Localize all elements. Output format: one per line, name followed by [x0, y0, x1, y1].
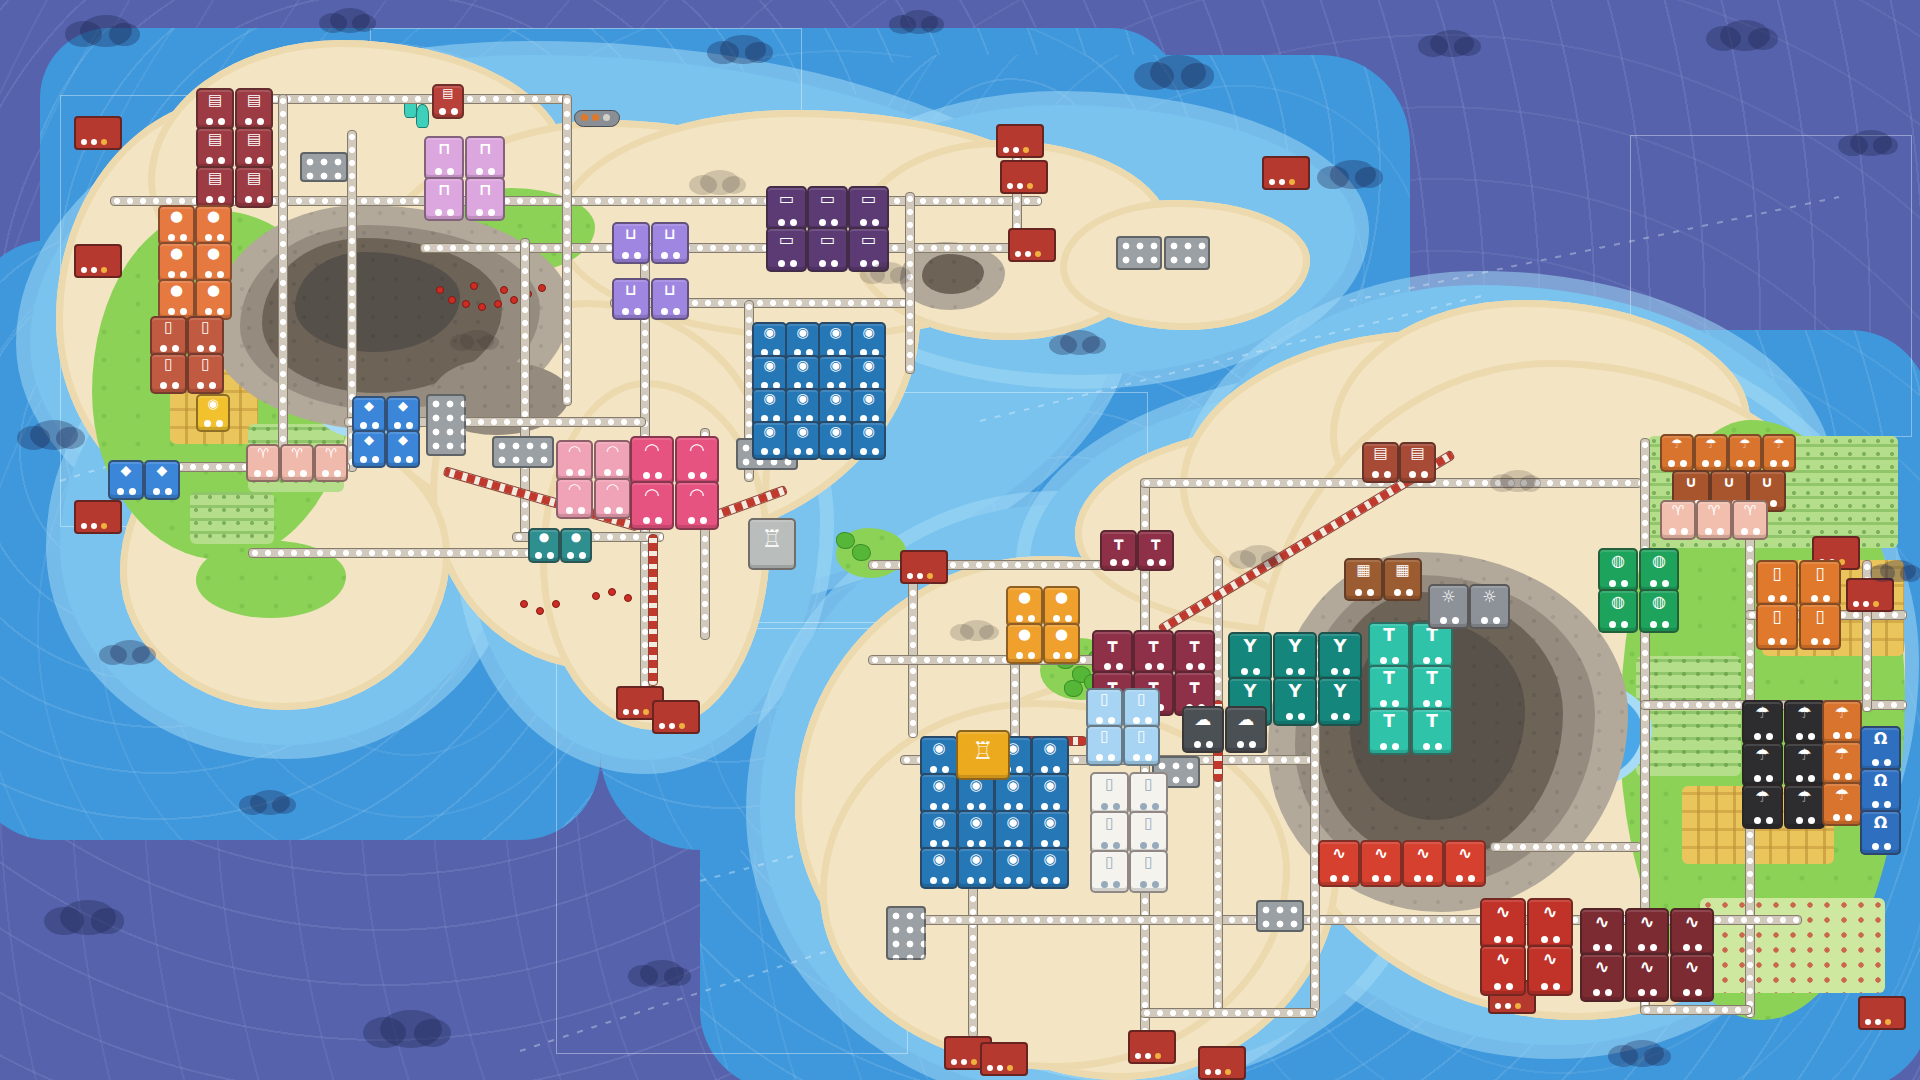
berry-bush[interactable]: [494, 300, 502, 308]
cargo-dock[interactable]: [1858, 996, 1906, 1030]
animal-pen-icon: ♈: [248, 447, 278, 461]
feather-factory-building[interactable]: ∿: [1527, 898, 1573, 949]
machine-factory-building[interactable]: ◉: [1031, 847, 1069, 889]
bottle-factory-icon: ▯: [1092, 854, 1127, 871]
bottle-factory-building[interactable]: ▯: [187, 353, 224, 394]
bed-factory-building[interactable]: ▭: [848, 186, 889, 231]
splitter-depot[interactable]: [1116, 236, 1162, 270]
machine-factory-building[interactable]: ◉: [752, 421, 787, 460]
conveyor-belt-segment[interactable]: [1490, 842, 1642, 852]
feather-factory-building[interactable]: ∿: [1480, 945, 1526, 996]
bed-factory-building[interactable]: ▭: [766, 186, 807, 231]
water-pump-building[interactable]: ◆: [108, 460, 144, 500]
mushroom-farm-building[interactable]: ☂: [1742, 742, 1783, 787]
bird-factory-building[interactable]: ∿: [1625, 953, 1669, 1002]
water-pump-building[interactable]: ◆: [352, 430, 386, 468]
machine-factory-building[interactable]: ◉: [818, 421, 853, 460]
crop-field: [1636, 656, 1741, 776]
boat-cargo: [581, 114, 588, 121]
mushroom-farm-building[interactable]: ☂: [1822, 700, 1862, 744]
hammer-factory-building[interactable]: T: [1411, 708, 1453, 755]
tool-factory-building[interactable]: Y: [1273, 632, 1317, 681]
tree: [852, 544, 871, 561]
io-slots: [206, 196, 213, 203]
splitter-depot[interactable]: [492, 436, 554, 468]
io-slots: [1796, 733, 1803, 740]
cloud-shadow: [700, 170, 740, 195]
cargo-boat[interactable]: [574, 110, 620, 127]
bottle-factory-building[interactable]: ▯: [1799, 560, 1841, 607]
machine-factory-building[interactable]: ◉: [920, 736, 958, 778]
mushroom-farm-building[interactable]: ☂: [1784, 700, 1825, 745]
bottle-factory-building[interactable]: ▯: [1756, 603, 1798, 650]
gear-factory-building[interactable]: ☼: [1428, 584, 1469, 629]
cloud-shadow-lobe: [56, 427, 85, 449]
chair-factory-building[interactable]: ⊓: [465, 136, 505, 180]
plate-factory-icon: ●: [160, 208, 193, 225]
water-pump-building[interactable]: ◆: [352, 396, 386, 434]
water-pump-icon: ◆: [388, 399, 418, 413]
berry-bush[interactable]: [624, 594, 632, 602]
boiler-building[interactable]: ☁: [1182, 706, 1224, 753]
mushroom-farm-building[interactable]: ☂: [1728, 434, 1762, 472]
mushroom-farm-building[interactable]: ☂: [1742, 700, 1783, 745]
hut-building[interactable]: ▤: [1362, 442, 1399, 483]
bottle-factory-building[interactable]: ▯: [1799, 603, 1841, 650]
couch-factory-building[interactable]: ⊔: [612, 278, 650, 320]
book-factory-icon: ▤: [237, 92, 271, 109]
io-slots: [1609, 621, 1616, 628]
pylon-factory-building[interactable]: ┳: [1092, 630, 1133, 675]
berry-bush[interactable]: [510, 296, 518, 304]
cargo-dock[interactable]: [74, 500, 122, 534]
animal-pen-building[interactable]: ♈: [1696, 500, 1732, 540]
hammer-factory-building[interactable]: T: [1368, 665, 1410, 712]
io-slots: [1668, 460, 1675, 467]
cargo-dock[interactable]: [1198, 1046, 1246, 1080]
chair-factory-building[interactable]: ⊓: [465, 177, 505, 221]
pylon-factory-icon: ┳: [1094, 634, 1131, 652]
machine-factory-icon: ◉: [787, 325, 818, 340]
plate-factory-building[interactable]: ●: [195, 205, 232, 246]
bottle-factory-building[interactable]: ▯: [150, 353, 187, 394]
striped-belt-segment[interactable]: [648, 534, 658, 686]
conveyor-belt-segment[interactable]: [900, 915, 1492, 925]
io-slots: [778, 260, 785, 267]
io-slots: [1133, 754, 1140, 761]
gear-factory-icon: ☼: [1430, 588, 1467, 606]
bottle-factory-icon: ▯: [1758, 564, 1796, 583]
water-pump-building[interactable]: ◆: [386, 396, 420, 434]
glass-factory-icon: ▯: [1125, 691, 1158, 708]
conveyor-belt-segment[interactable]: [420, 243, 1012, 253]
mushroom-farm-building[interactable]: ☂: [1660, 434, 1694, 472]
workshop-building[interactable]: ●: [560, 528, 592, 563]
cloud-shadow-lobe: [414, 1019, 451, 1047]
io-slots: [1796, 817, 1803, 824]
bird-factory-building[interactable]: ∿: [1670, 908, 1714, 957]
io-slots: [930, 840, 937, 847]
bottle-factory-building[interactable]: ▯: [1129, 811, 1168, 854]
animal-pen-building[interactable]: ♈: [1660, 500, 1696, 540]
io-slots: [1872, 843, 1879, 850]
cloud-shadow-lobe: [950, 624, 974, 641]
feather-factory-building[interactable]: ∿: [1318, 840, 1360, 887]
bakery-icon: ◠: [632, 440, 672, 460]
conveyor-belt-segment[interactable]: [1640, 1005, 1752, 1015]
crystal-deposit[interactable]: [416, 104, 429, 128]
bird-factory-icon: ∿: [1672, 957, 1712, 977]
book-factory-building[interactable]: ▤: [196, 127, 234, 169]
splitter-depot[interactable]: [300, 152, 348, 182]
press-building[interactable]: ◉: [196, 394, 230, 432]
plate-factory-building[interactable]: ●: [158, 205, 195, 246]
io-slots: [1380, 657, 1387, 664]
io-slots: [1380, 700, 1387, 707]
book-factory-building[interactable]: ▤: [235, 166, 273, 208]
io-slots: [1194, 741, 1201, 748]
bird-factory-icon: ∿: [1582, 957, 1622, 977]
hammer-factory-building[interactable]: T: [1368, 622, 1410, 669]
pylon-factory-building[interactable]: ┳: [1174, 630, 1215, 675]
research-lab[interactable]: ♖: [748, 518, 796, 570]
bottle-factory-building[interactable]: ▯: [1129, 772, 1168, 815]
cargo-dock[interactable]: [1262, 156, 1310, 190]
machine-factory-building[interactable]: ◉: [957, 810, 995, 852]
machine-factory-building[interactable]: ◉: [994, 847, 1032, 889]
cloud-shadow-lobe: [319, 13, 347, 33]
machine-factory-building[interactable]: ◉: [1031, 810, 1069, 852]
gold-vault-temple-icon: ♖: [958, 738, 1008, 764]
couch-factory-building[interactable]: ⊔: [651, 222, 689, 264]
hut-icon: ▤: [1364, 445, 1397, 462]
bottle-factory-building[interactable]: ▯: [1090, 850, 1129, 893]
berry-bush[interactable]: [608, 588, 616, 596]
splitter-depot[interactable]: [1256, 900, 1304, 932]
cargo-dock[interactable]: [652, 700, 700, 734]
feather-factory-building[interactable]: ∿: [1360, 840, 1402, 887]
rabbit-hutch-building[interactable]: Ω: [1860, 768, 1901, 813]
io-slots: [1494, 936, 1501, 943]
berry-bush[interactable]: [552, 600, 560, 608]
io-slots: [1736, 460, 1743, 467]
io-slots: [1593, 989, 1600, 996]
mushroom-farm-icon: ☂: [1744, 746, 1781, 764]
cloud-shadow-lobe: [1082, 336, 1106, 354]
hammer-factory-building[interactable]: T: [1411, 665, 1453, 712]
mushroom-farm-building[interactable]: ☂: [1784, 742, 1825, 787]
bakery-building[interactable]: ◠: [556, 440, 593, 481]
conveyor-belt-segment[interactable]: [905, 192, 915, 374]
plate-factory-building[interactable]: ●: [158, 242, 195, 283]
machine-factory-icon: ◉: [853, 325, 884, 340]
io-slots: [1041, 766, 1048, 773]
cloud-shadow-lobe: [132, 646, 156, 664]
animal-pen-building[interactable]: ♈: [246, 444, 280, 482]
bird-factory-building[interactable]: ∿: [1580, 953, 1624, 1002]
book-factory-icon: ▤: [237, 131, 271, 148]
berry-bush[interactable]: [448, 296, 456, 304]
io-slots: [761, 448, 768, 455]
cup-factory-icon: ∪: [1712, 474, 1746, 491]
cloud-shadow-lobe: [889, 15, 916, 34]
feather-factory-building[interactable]: ∿: [1527, 945, 1573, 996]
bottle-factory-building[interactable]: ▯: [1129, 850, 1168, 893]
crate-factory-building[interactable]: ▦: [1383, 558, 1422, 601]
bed-factory-building[interactable]: ▭: [807, 186, 848, 231]
glass-factory-building[interactable]: ▯: [1086, 688, 1123, 729]
feather-factory-building[interactable]: ∿: [1480, 898, 1526, 949]
bakery-icon: ◠: [632, 485, 672, 505]
green-factory-building[interactable]: ◍: [1598, 589, 1638, 633]
workshop-icon: ●: [530, 531, 558, 544]
food-factory-building[interactable]: ●: [1006, 586, 1043, 627]
chair-factory-building[interactable]: ⊓: [424, 136, 464, 180]
machine-factory-building[interactable]: ◉: [920, 847, 958, 889]
machine-factory-icon: ◉: [853, 424, 884, 439]
book-factory-building[interactable]: ▤: [196, 88, 234, 130]
machine-factory-building[interactable]: ◉: [1031, 773, 1069, 815]
io-slots: [1754, 775, 1761, 782]
cargo-dock[interactable]: [1846, 578, 1894, 612]
io-slots: [1683, 944, 1690, 951]
machine-factory-icon: ◉: [922, 777, 956, 794]
cargo-dock[interactable]: [74, 244, 122, 278]
mushroom-farm-icon: ☂: [1696, 437, 1726, 451]
berry-bush[interactable]: [462, 300, 470, 308]
chair-factory-icon: ⊓: [426, 181, 462, 199]
feather-factory-building[interactable]: ∿: [1402, 840, 1444, 887]
feather-factory-icon: ∿: [1404, 844, 1442, 863]
cloud-shadow: [1240, 545, 1278, 569]
food-factory-building[interactable]: ●: [1043, 586, 1080, 627]
bottle-factory-building[interactable]: ▯: [1756, 560, 1798, 607]
plate-factory-building[interactable]: ●: [195, 242, 232, 283]
splitter-depot[interactable]: [426, 394, 466, 456]
bakery-icon: ◠: [596, 443, 629, 460]
hammer-factory-icon: T: [1413, 669, 1451, 688]
food-factory-building[interactable]: ●: [1006, 623, 1043, 664]
mushroom-farm-building[interactable]: ☂: [1694, 434, 1728, 472]
bed-factory-building[interactable]: ▭: [766, 227, 807, 272]
bed-factory-building[interactable]: ▭: [807, 227, 848, 272]
cargo-dock[interactable]: [74, 116, 122, 150]
machine-factory-building[interactable]: ◉: [1031, 736, 1069, 778]
io-slots: [1140, 842, 1147, 849]
water-pump-building[interactable]: ◆: [144, 460, 180, 500]
pylon-factory-building[interactable]: ┳: [1100, 530, 1137, 571]
cloud-shadow: [870, 262, 906, 284]
rabbit-hutch-building[interactable]: Ω: [1860, 726, 1901, 771]
cloud-shadow: [1500, 470, 1536, 492]
berry-bush[interactable]: [470, 282, 478, 290]
cloud-shadow-lobe: [1454, 37, 1480, 57]
berry-bush[interactable]: [592, 592, 600, 600]
book-factory-building[interactable]: ▤: [235, 127, 273, 169]
cargo-dock[interactable]: [900, 550, 948, 584]
io-slots: [394, 422, 401, 429]
plate-factory-building[interactable]: ●: [158, 279, 195, 320]
conveyor-belt-segment[interactable]: [1140, 1008, 1317, 1018]
cargo-dock[interactable]: [996, 124, 1044, 158]
bed-factory-icon: ▭: [768, 190, 805, 208]
io-slots: [930, 803, 937, 810]
water-pump-icon: ◆: [388, 433, 418, 447]
conveyor-belt-segment[interactable]: [278, 94, 288, 466]
machine-factory-building[interactable]: ◉: [920, 773, 958, 815]
crate-factory-building[interactable]: ▦: [1344, 558, 1383, 601]
tool-factory-building[interactable]: Y: [1228, 632, 1272, 681]
animal-pen-icon: ♈: [1698, 503, 1730, 518]
cloud-shadow-lobe: [450, 334, 474, 351]
bakery-building[interactable]: ◠: [675, 436, 719, 485]
bakery-building[interactable]: ◠: [556, 478, 593, 519]
cargo-dock[interactable]: [980, 1042, 1028, 1076]
couch-factory-icon: ⊔: [653, 282, 687, 299]
mushroom-farm-building[interactable]: ☂: [1762, 434, 1796, 472]
bed-factory-icon: ▭: [768, 231, 805, 249]
bottle-factory-building[interactable]: ▯: [150, 316, 187, 357]
bird-factory-building[interactable]: ∿: [1670, 953, 1714, 1002]
machine-factory-building[interactable]: ◉: [994, 810, 1032, 852]
cloud-shadow: [250, 790, 290, 815]
io-slots: [168, 308, 175, 315]
io-slots: [1811, 595, 1818, 602]
glass-factory-building[interactable]: ▯: [1123, 688, 1160, 729]
hut-icon: ▤: [1401, 445, 1434, 462]
cargo-dock[interactable]: [1000, 160, 1048, 194]
feather-factory-building[interactable]: ∿: [1444, 840, 1486, 887]
animal-pen-building[interactable]: ♈: [280, 444, 314, 482]
machine-factory-building[interactable]: ◉: [851, 421, 886, 460]
green-factory-building[interactable]: ◍: [1598, 548, 1638, 592]
gear-factory-building[interactable]: ☼: [1469, 584, 1510, 629]
io-slots: [1683, 989, 1690, 996]
chair-factory-building[interactable]: ⊓: [424, 177, 464, 221]
rabbit-hutch-building[interactable]: Ω: [1860, 810, 1901, 855]
bottle-factory-building[interactable]: ▯: [1090, 772, 1129, 815]
tool-factory-building[interactable]: Y: [1273, 677, 1317, 726]
io-slots: [967, 803, 974, 810]
bottle-factory-building[interactable]: ▯: [187, 316, 224, 357]
pylon-factory-icon: ┳: [1102, 533, 1135, 550]
bed-factory-icon: ▭: [850, 231, 887, 249]
machine-factory-icon: ◉: [820, 424, 851, 439]
berry-bush[interactable]: [520, 600, 528, 608]
conveyor-belt-segment[interactable]: [562, 94, 572, 406]
io-slots: [1241, 668, 1248, 675]
io-slots: [643, 472, 650, 479]
io-slots: [688, 517, 695, 524]
cloud-shadow: [1720, 20, 1770, 51]
dock-cargo-slots: [1853, 601, 1859, 607]
plate-factory-building[interactable]: ●: [195, 279, 232, 320]
io-slots: [1355, 589, 1362, 596]
bakery-building[interactable]: ◠: [630, 436, 674, 485]
book-factory-building[interactable]: ▤: [196, 166, 234, 208]
io-slots: [1110, 559, 1117, 566]
pylon-factory-building[interactable]: ┳: [1137, 530, 1174, 571]
mushroom-farm-building[interactable]: ☂: [1742, 784, 1783, 829]
water-pump-building[interactable]: ◆: [386, 430, 420, 468]
couch-factory-building[interactable]: ⊔: [651, 278, 689, 320]
crop-field: [190, 492, 274, 544]
mushroom-farm-building[interactable]: ☂: [1822, 782, 1862, 826]
gold-vault[interactable]: ♖: [956, 730, 1010, 780]
cargo-dock[interactable]: [1128, 1030, 1176, 1064]
io-slots: [1041, 877, 1048, 884]
berry-bush[interactable]: [500, 286, 508, 294]
machine-factory-icon: ◉: [1033, 740, 1067, 757]
io-slots: [1768, 595, 1775, 602]
conveyor-belt-segment[interactable]: [248, 548, 568, 558]
berry-bush[interactable]: [436, 286, 444, 294]
pylon-factory-building[interactable]: ┳: [1133, 630, 1174, 675]
glass-factory-building[interactable]: ▯: [1086, 725, 1123, 766]
berry-bush[interactable]: [536, 607, 544, 615]
mushroom-farm-building[interactable]: ☂: [1784, 784, 1825, 829]
bird-factory-building[interactable]: ∿: [1580, 908, 1624, 957]
io-slots: [1650, 621, 1657, 628]
food-factory-building[interactable]: ●: [1043, 623, 1080, 664]
cloud-shadow: [1430, 30, 1474, 57]
berry-bush[interactable]: [538, 284, 546, 292]
book-factory-building[interactable]: ▤: [235, 88, 273, 130]
tool-factory-building[interactable]: Y: [1318, 677, 1362, 726]
machine-factory-building[interactable]: ◉: [920, 810, 958, 852]
mushroom-farm-building[interactable]: ☂: [1822, 741, 1862, 785]
machine-factory-icon: ◉: [787, 391, 818, 406]
splitter-depot[interactable]: [886, 906, 926, 960]
boiler-building[interactable]: ☁: [1225, 706, 1267, 753]
berry-bush[interactable]: [478, 303, 486, 311]
io-slots: [688, 472, 695, 479]
bakery-building[interactable]: ◠: [630, 481, 674, 530]
hammer-factory-building[interactable]: T: [1411, 622, 1453, 669]
tool-factory-icon: Y: [1275, 636, 1315, 656]
machine-factory-building[interactable]: ◉: [957, 847, 995, 889]
conveyor-belt-segment[interactable]: [268, 94, 570, 104]
hut-building[interactable]: ▤: [1399, 442, 1436, 483]
io-slots: [860, 448, 867, 455]
io-slots: [1770, 460, 1777, 467]
couch-factory-icon: ⊔: [614, 226, 648, 243]
animal-pen-building[interactable]: ♈: [1732, 500, 1768, 540]
bakery-building[interactable]: ◠: [594, 478, 631, 519]
cargo-dock[interactable]: [1008, 228, 1056, 262]
cloud-shadow-lobe: [921, 16, 944, 33]
green-factory-building[interactable]: ◍: [1639, 589, 1679, 633]
hammer-factory-building[interactable]: T: [1368, 708, 1410, 755]
conveyor-belt-segment[interactable]: [1213, 556, 1223, 1014]
book-factory-icon: ▤: [237, 170, 271, 187]
tool-factory-building[interactable]: Y: [1318, 632, 1362, 681]
couch-factory-building[interactable]: ⊔: [612, 222, 650, 264]
hut-building[interactable]: ▤: [432, 84, 464, 119]
dock-cargo-slots: [81, 267, 87, 273]
bakery-building[interactable]: ◠: [594, 440, 631, 481]
animal-pen-building[interactable]: ♈: [314, 444, 348, 482]
conveyor-belt-segment[interactable]: [908, 560, 918, 738]
machine-factory-building[interactable]: ◉: [785, 421, 820, 460]
green-factory-building[interactable]: ◍: [1639, 548, 1679, 592]
splitter-depot[interactable]: [1164, 236, 1210, 270]
glass-factory-building[interactable]: ▯: [1123, 725, 1160, 766]
workshop-building[interactable]: ●: [528, 528, 560, 563]
bottle-factory-building[interactable]: ▯: [1090, 811, 1129, 854]
bakery-building[interactable]: ◠: [675, 481, 719, 530]
bird-factory-building[interactable]: ∿: [1625, 908, 1669, 957]
